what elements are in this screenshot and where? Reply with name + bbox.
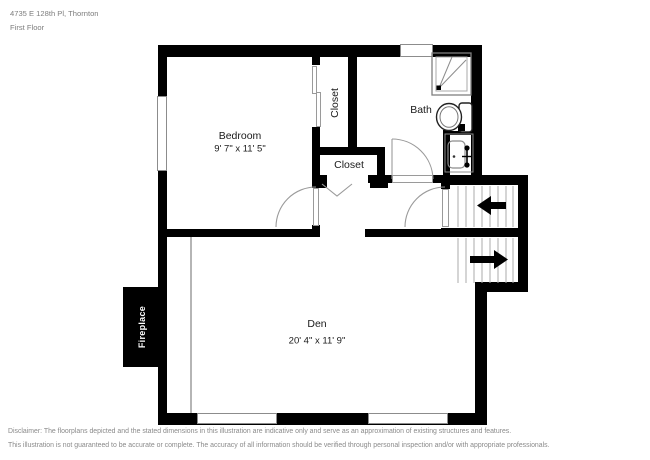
wall-segment — [312, 45, 320, 65]
sliding-door-panel — [316, 92, 321, 127]
wall-segment — [158, 45, 400, 57]
address-text: 4735 E 128th Pl, Thornton — [10, 9, 99, 18]
ceiling-break-line — [190, 237, 192, 413]
door-leaf — [313, 188, 319, 226]
room-label-bedroom: Bedroom — [219, 130, 262, 142]
door-sill — [392, 175, 433, 183]
room-label-closet-bedroom: Closet — [329, 88, 341, 118]
room-label-closet-hall: Closet — [334, 159, 364, 171]
window — [400, 44, 433, 57]
wall-segment — [445, 131, 478, 135]
room-label-den: Den — [307, 318, 326, 330]
room-label-bath: Bath — [410, 104, 432, 116]
floorplan-page: 4735 E 128th Pl, Thornton First Floor Fi… — [0, 0, 650, 460]
room-dimensions-den: 20' 4" x 11' 9" — [289, 336, 346, 347]
wall-segment — [475, 282, 487, 425]
shower-icon — [432, 53, 471, 95]
wall-segment — [313, 175, 327, 188]
wall-segment — [158, 45, 167, 97]
toilet-icon — [437, 103, 473, 132]
wall-segment — [443, 130, 450, 183]
stairs-arrow-right-icon — [470, 250, 508, 269]
fireplace-label: Fireplace — [137, 306, 147, 348]
stair-treads — [458, 238, 513, 283]
window — [157, 96, 167, 171]
fireplace: Fireplace — [123, 287, 160, 367]
wall-segment — [313, 147, 383, 155]
wall-segment — [433, 175, 487, 183]
disclaimer-line-1: Disclaimer: The floorplans depicted and … — [8, 428, 511, 435]
wall-segment — [368, 175, 392, 183]
wall-segment — [158, 229, 318, 237]
wall-segment — [471, 45, 482, 183]
window — [368, 413, 448, 424]
wall-segment — [365, 229, 450, 237]
door-leaf — [442, 189, 449, 227]
stairs-arrow-left-icon — [477, 196, 506, 215]
wall-segment — [441, 228, 528, 237]
room-dimensions-bedroom: 9' 7" x 11' 5" — [214, 144, 265, 155]
stair-treads — [458, 186, 513, 227]
floor-label: First Floor — [10, 23, 44, 32]
sliding-door-panel — [312, 66, 317, 94]
disclaimer-line-2: This illustration is not guaranteed to b… — [8, 442, 549, 449]
window — [197, 413, 277, 424]
wall-segment — [348, 45, 357, 147]
